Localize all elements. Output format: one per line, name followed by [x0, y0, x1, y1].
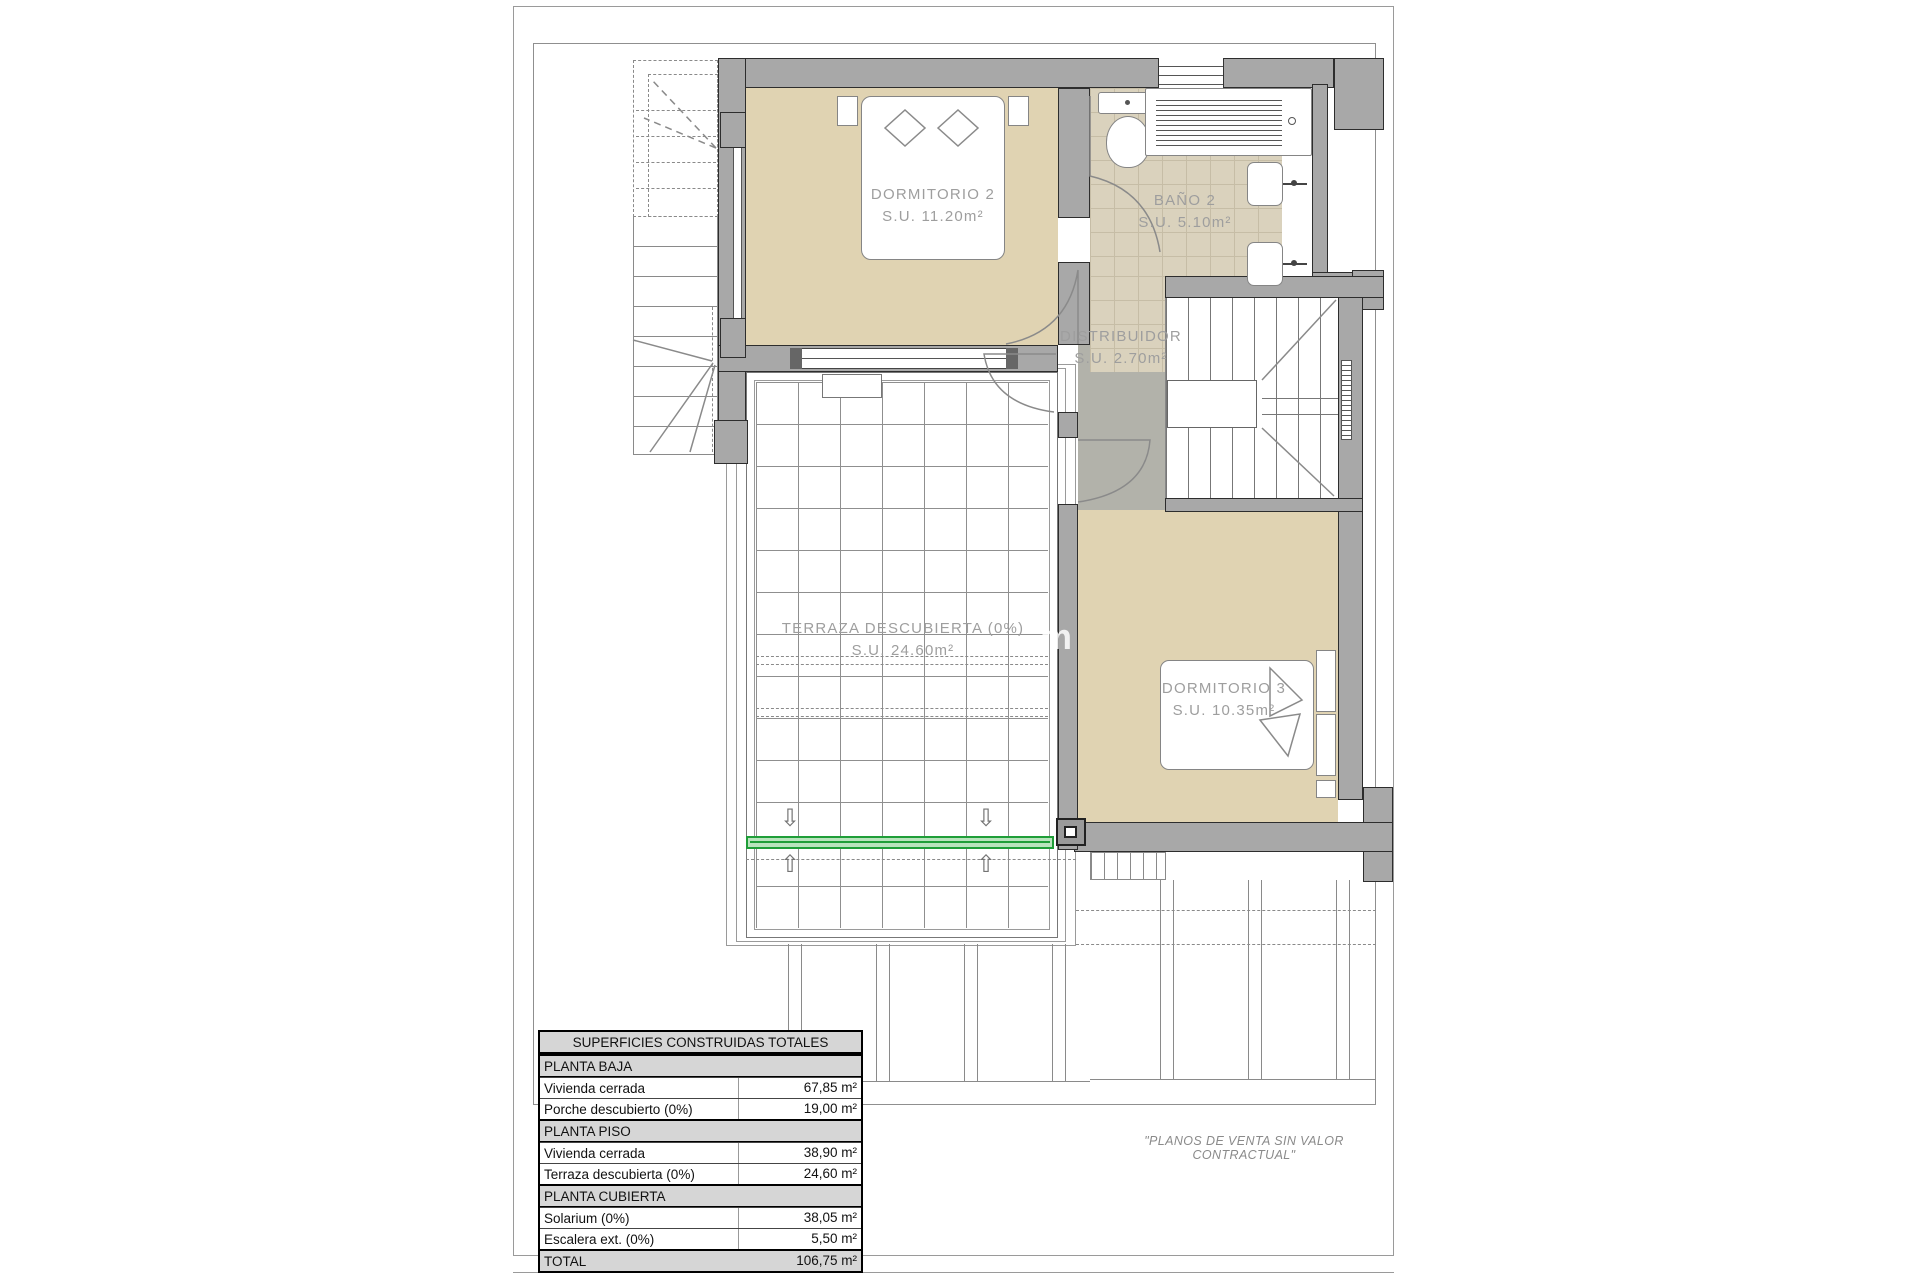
row-label: Vivienda cerrada — [540, 1144, 738, 1163]
ext-stair-winder-lines — [633, 340, 715, 452]
row-value: 5,50 m² — [738, 1229, 861, 1249]
row-value: 24,60 m² — [738, 1164, 861, 1184]
row-value: 67,85 m² — [738, 1078, 861, 1098]
room-name: DORMITORIO 2 — [871, 184, 995, 206]
ext-stair-fan-dashed — [644, 80, 716, 148]
room-name: DORMITORIO 3 — [1162, 678, 1286, 700]
table-section-header: PLANTA CUBIERTA — [540, 1184, 861, 1207]
row-label: Terraza descubierta (0%) — [540, 1165, 738, 1184]
total-value: 106,75 m² — [739, 1251, 861, 1271]
surfaces-table: SUPERFICIES CONSTRUIDAS TOTALES PLANTA B… — [538, 1030, 863, 1273]
room-label-bano2: BAÑO 2 S.U. 5.10m² — [1138, 190, 1231, 234]
bed2-pillow-right — [938, 110, 978, 146]
table-row: Vivienda cerrada 67,85 m² — [540, 1077, 861, 1098]
watermark-fragment: m — [1040, 616, 1072, 658]
table-row: Solarium (0%) 38,05 m² — [540, 1207, 861, 1228]
floor-plan-canvas: ⇩ ⇩ ⇧ ⇧ — [0, 0, 1920, 1280]
stair-diagonal-upper — [1262, 300, 1336, 380]
room-area: S.U. 10.35m² — [1162, 700, 1286, 722]
room-name: BAÑO 2 — [1138, 190, 1231, 212]
table-row: Vivienda cerrada 38,90 m² — [540, 1142, 861, 1163]
row-label: Solarium (0%) — [540, 1209, 738, 1228]
table-row: Escalera ext. (0%) 5,50 m² — [540, 1228, 861, 1249]
row-value: 38,90 m² — [738, 1143, 861, 1163]
door-terraza-leaf-arc — [984, 354, 1056, 412]
room-area: S.U. 5.10m² — [1138, 212, 1231, 234]
room-label-dormitorio3: DORMITORIO 3 S.U. 10.35m² — [1162, 678, 1286, 722]
row-label: Porche descubierto (0%) — [540, 1100, 738, 1119]
table-section-header: PLANTA PISO — [540, 1119, 861, 1142]
room-label-dormitorio2: DORMITORIO 2 S.U. 11.20m² — [871, 184, 995, 228]
table-row: Terraza descubierta (0%) 24,60 m² — [540, 1163, 861, 1184]
row-value: 38,05 m² — [738, 1208, 861, 1228]
total-label: TOTAL — [540, 1252, 739, 1271]
row-label: Vivienda cerrada — [540, 1079, 738, 1098]
room-area: S.U. 11.20m² — [871, 206, 995, 228]
door-dorm3-leaf-arc — [1078, 440, 1150, 502]
row-value: 19,00 m² — [738, 1099, 861, 1119]
room-name: TERRAZA DESCUBIERTA (0%) — [782, 618, 1024, 640]
room-area: S.U. 2.70m² — [1060, 348, 1182, 370]
stair-diagonal-lower — [1262, 428, 1334, 496]
bed2-pillow-left — [885, 110, 925, 146]
room-name: DISTRIBUIDOR — [1060, 326, 1182, 348]
table-total-row: TOTAL 106,75 m² — [540, 1249, 861, 1271]
table-section-header: PLANTA BAJA — [540, 1054, 861, 1077]
room-label-terraza: TERRAZA DESCUBIERTA (0%) S.U. 24.60m² — [782, 618, 1024, 662]
room-label-distribuidor: DISTRIBUIDOR S.U. 2.70m² — [1060, 326, 1182, 370]
table-row: Porche descubierto (0%) 19,00 m² — [540, 1098, 861, 1119]
room-area: S.U. 24.60m² — [782, 640, 1024, 662]
disclaimer-text: "PLANOS DE VENTA SIN VALOR CONTRACTUAL" — [1100, 1134, 1388, 1162]
row-label: Escalera ext. (0%) — [540, 1230, 738, 1249]
table-title: SUPERFICIES CONSTRUIDAS TOTALES — [540, 1032, 861, 1054]
